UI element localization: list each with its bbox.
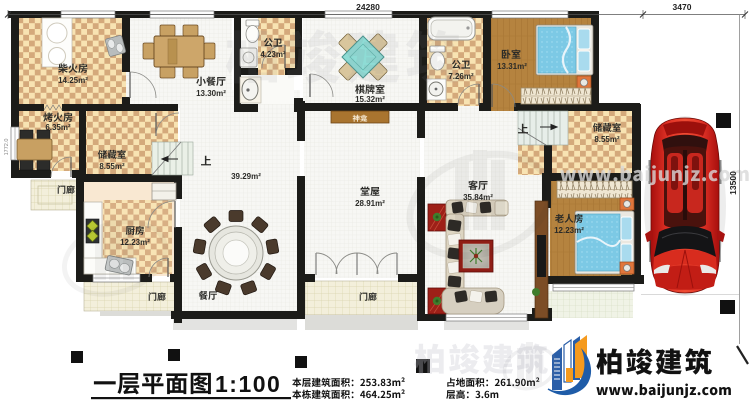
svg-text:15.32m²: 15.32m² [355,95,385,104]
svg-text:1772.0: 1772.0 [4,139,10,156]
svg-text:8.55m²: 8.55m² [99,162,125,171]
svg-text:13500: 13500 [728,171,738,195]
svg-text:35.84m²: 35.84m² [463,193,493,202]
svg-text:12.23m²: 12.23m² [554,226,584,235]
svg-text:39.29m²: 39.29m² [231,172,261,181]
svg-text:28.91m²: 28.91m² [355,199,385,208]
svg-text:8.55m²: 8.55m² [594,135,620,144]
svg-text:24280: 24280 [356,2,380,12]
svg-text:13.30m²: 13.30m² [196,89,226,98]
svg-text:3470: 3470 [673,2,692,12]
svg-text:1:100: 1:100 [215,371,281,397]
svg-text:12.23m²: 12.23m² [120,238,150,247]
svg-text:4.23m²: 4.23m² [260,50,286,59]
svg-text:13.31m²: 13.31m² [497,62,527,71]
svg-text:6.35m²: 6.35m² [45,123,71,132]
svg-text:7.26m²: 7.26m² [448,72,474,81]
svg-text:14.25m²: 14.25m² [58,76,88,85]
